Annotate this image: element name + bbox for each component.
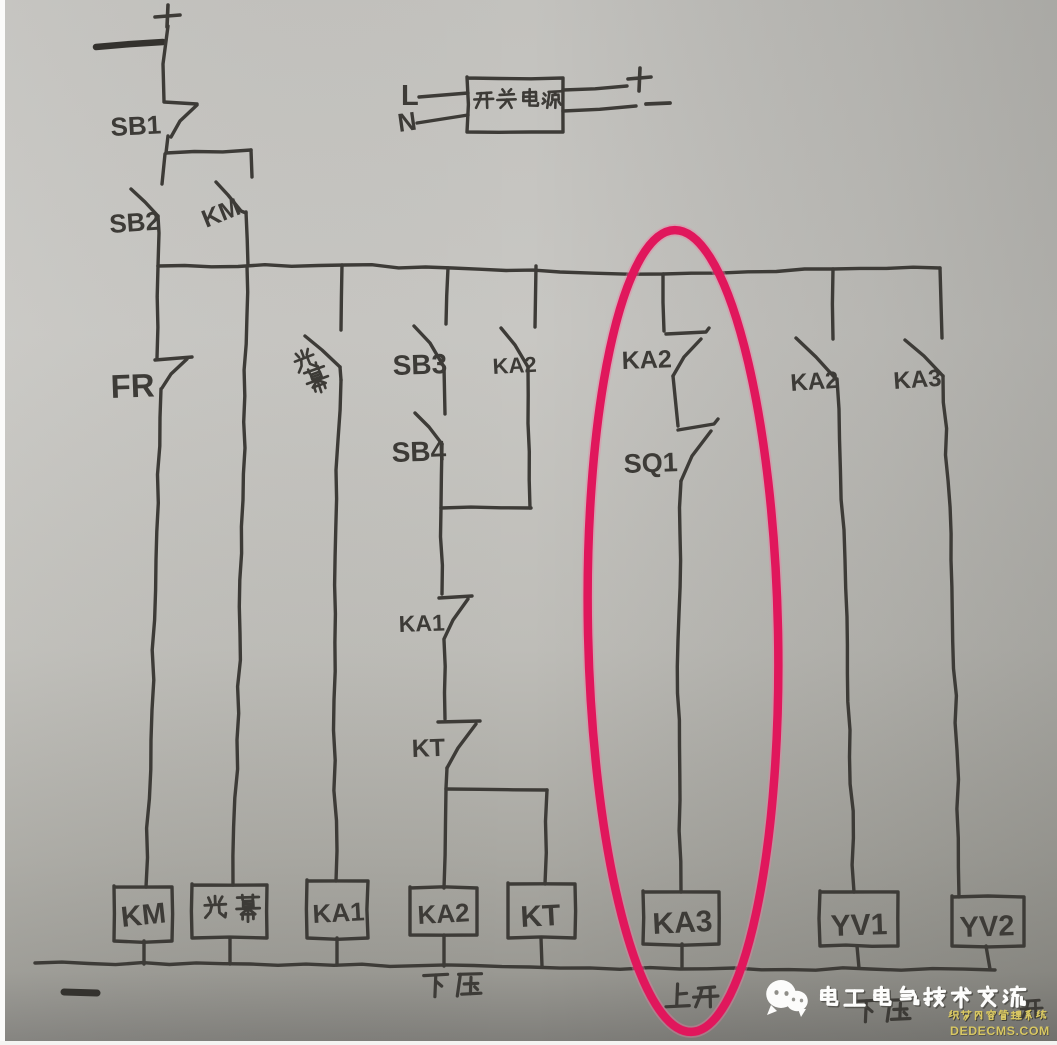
svg-text:YV1: YV1	[830, 908, 888, 943]
svg-text:SQ1: SQ1	[623, 447, 678, 479]
svg-text:KA3: KA3	[652, 905, 714, 941]
svg-text:KA1: KA1	[312, 896, 366, 929]
svg-text:SB4: SB4	[391, 435, 447, 468]
svg-text:KA2: KA2	[621, 345, 672, 375]
svg-text:DEDECMS.COM: DEDECMS.COM	[950, 1024, 1050, 1038]
svg-text:KA1: KA1	[398, 609, 445, 637]
svg-text:SB2: SB2	[108, 206, 161, 239]
svg-text:SB3: SB3	[392, 348, 448, 381]
svg-text:KT: KT	[411, 734, 445, 763]
svg-text:FR: FR	[110, 366, 155, 405]
svg-text:KM: KM	[119, 897, 167, 934]
svg-text:KA2: KA2	[417, 897, 471, 930]
svg-text:YV2: YV2	[959, 910, 1015, 944]
svg-text:KT: KT	[520, 899, 562, 934]
svg-text:KA2: KA2	[492, 352, 537, 379]
svg-text:SB1: SB1	[110, 109, 162, 142]
svg-text:KA2: KA2	[790, 367, 840, 397]
svg-text:KA3: KA3	[893, 365, 943, 395]
